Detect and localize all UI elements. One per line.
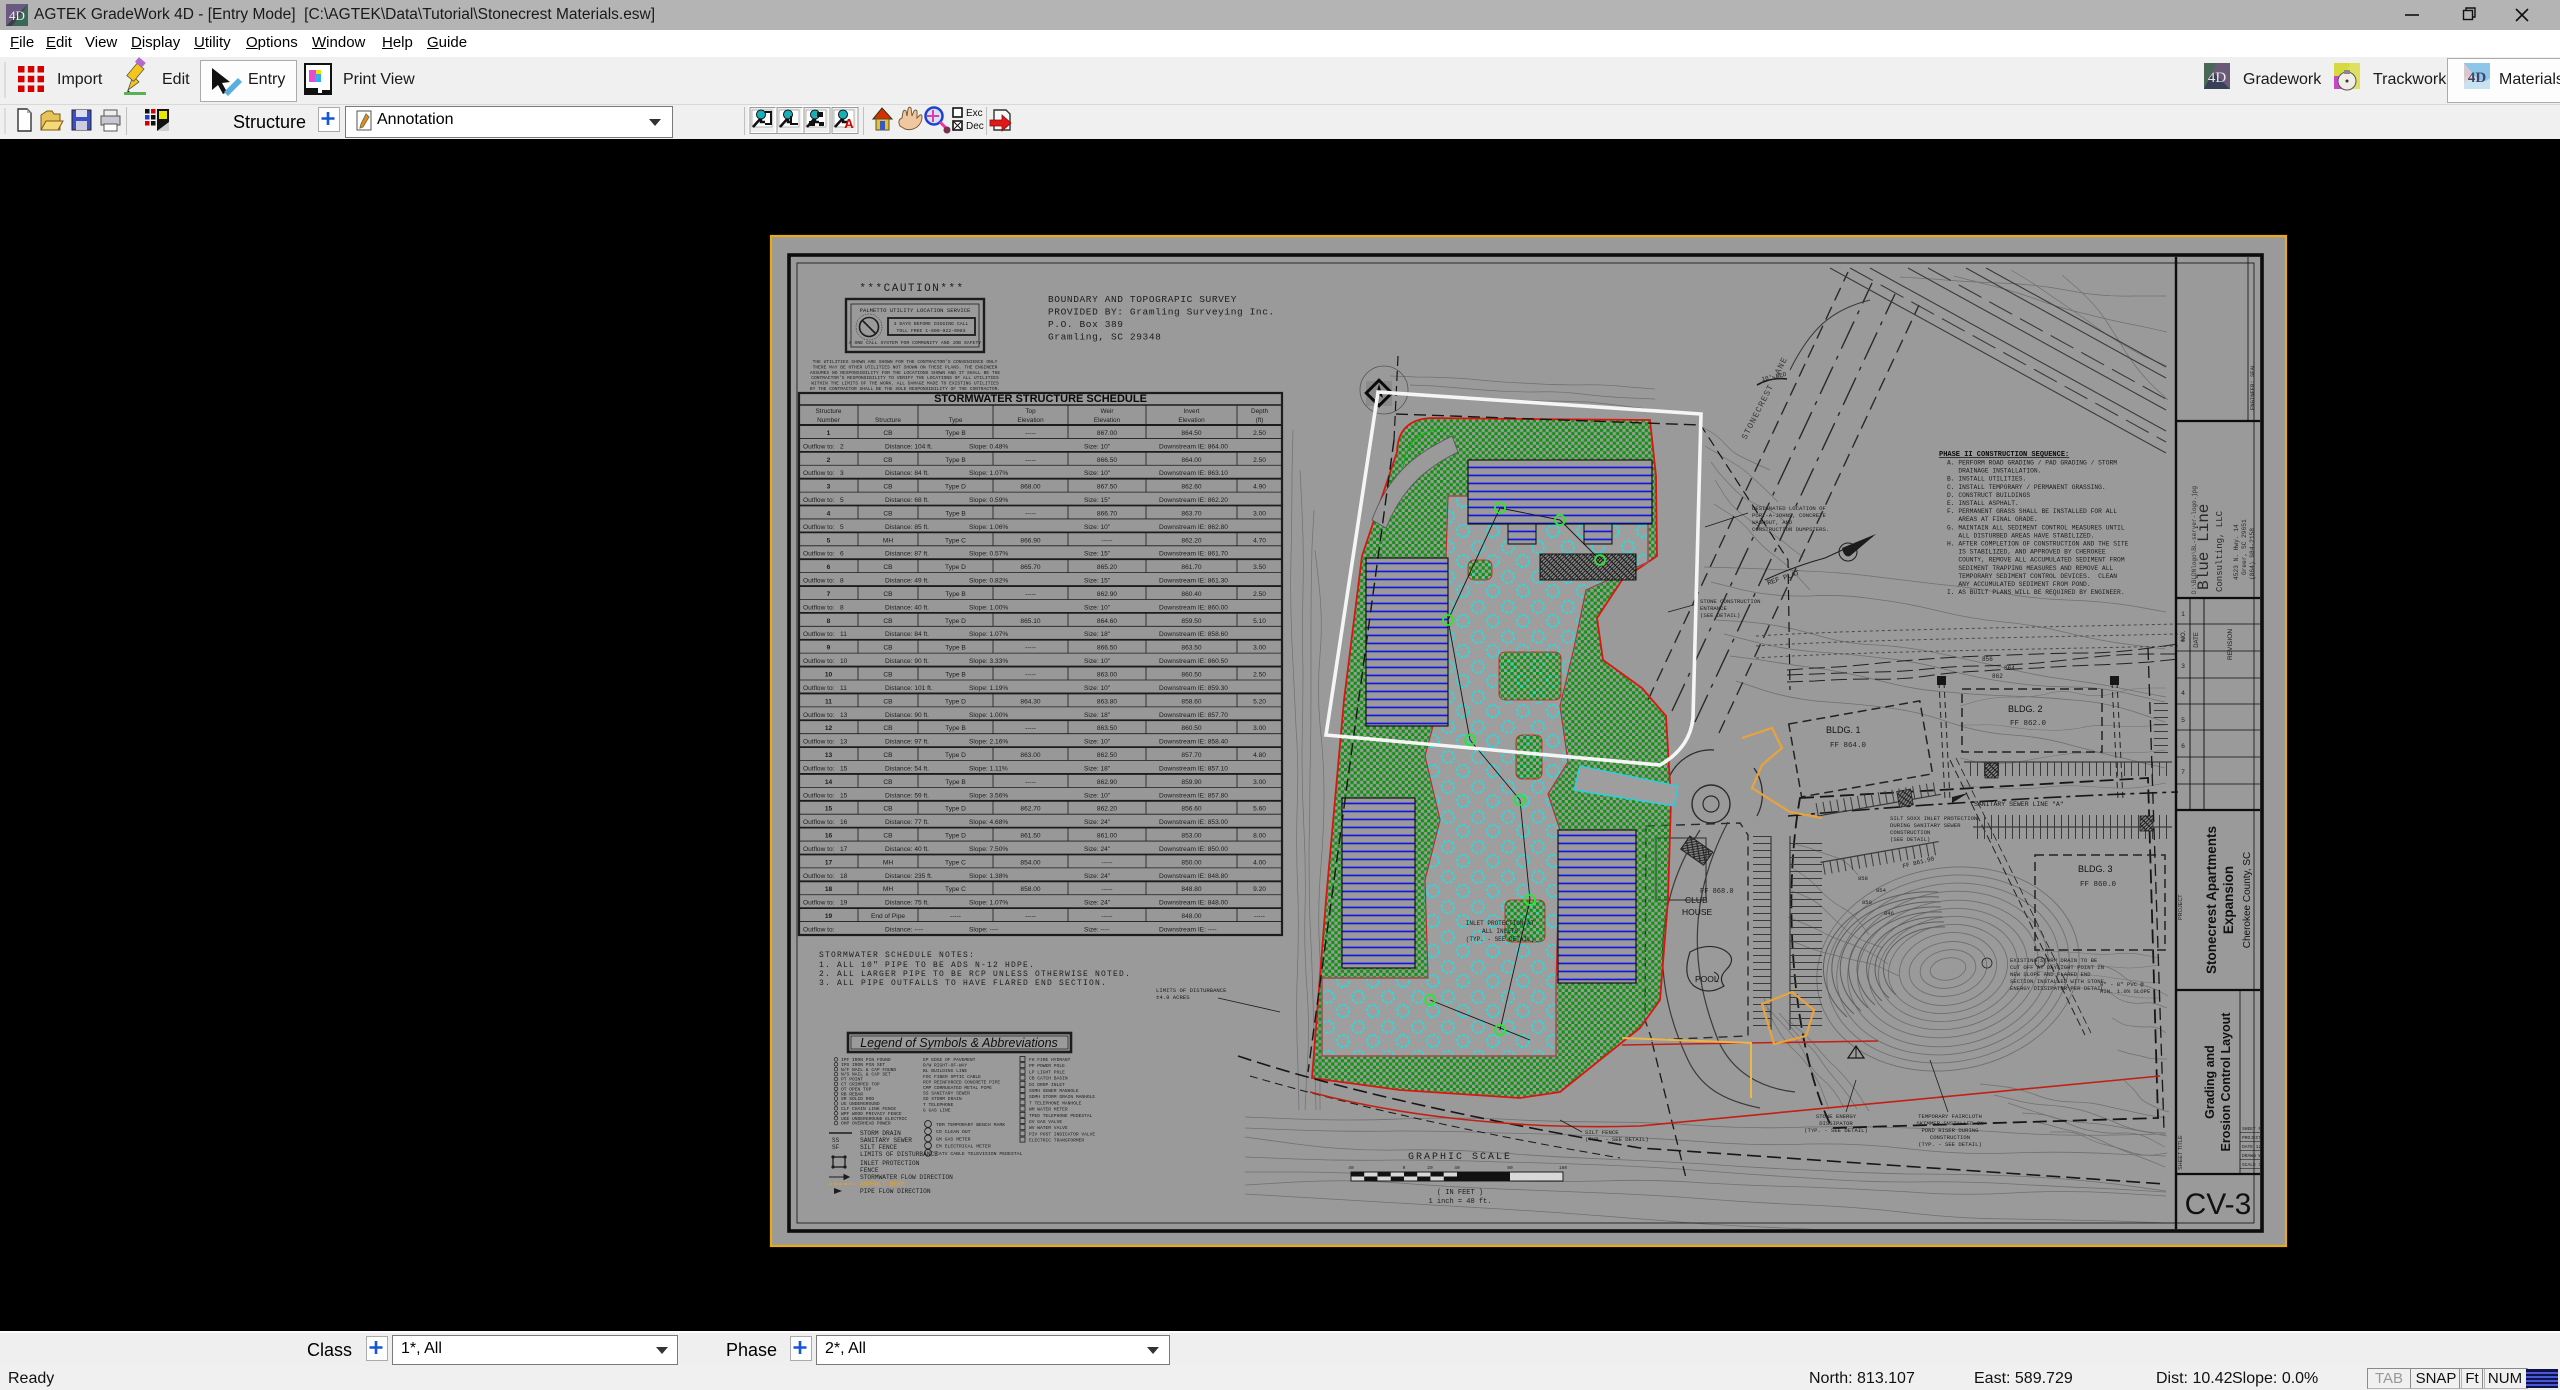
svg-text:Downstream IE: 853.00: Downstream IE: 853.00 [1159,819,1228,826]
svg-text:FF 868.0: FF 868.0 [1700,888,1734,896]
svg-text:Outflow to: 8: Outflow to: 8 [803,604,844,611]
svg-text:LIMITS OF DISTURBANCE: LIMITS OF DISTURBANCE [860,1151,938,1158]
svg-text:4.80: 4.80 [1253,752,1266,759]
svg-text:40: 40 [1348,1165,1354,1171]
svg-text:( IN FEET ): ( IN FEET ) [1437,1189,1483,1197]
svg-text:867.50: 867.50 [1097,484,1118,491]
svg-text:864.00: 864.00 [1181,457,1202,464]
svg-text:Depth: Depth [1251,408,1268,415]
svg-text:Exc: Exc [966,108,983,119]
svg-text:MIN. 1.0% SLOPE: MIN. 1.0% SLOPE [2100,988,2151,995]
svg-text:860.50: 860.50 [1181,672,1202,679]
svg-text:Gramling, SC 29348: Gramling, SC 29348 [1048,332,1161,343]
svg-text:Type B: Type B [945,672,966,679]
svg-text:854.00: 854.00 [1020,859,1041,866]
svg-text:Stonecrest Apartments: Stonecrest Apartments [2204,826,2219,974]
svg-text:CB: CB [883,564,893,571]
svg-text:Elevation: Elevation [1017,417,1044,424]
svg-text:SECTION INSTALLED WITH STONE: SECTION INSTALLED WITH STONE [2010,978,2105,985]
svg-text:Size: 24": Size: 24" [1084,819,1111,826]
svg-text:Type B: Type B [945,510,966,517]
svg-text:WM WATER METER: WM WATER METER [1029,1107,1068,1113]
svg-text:861.50: 861.50 [1020,833,1041,840]
svg-text:-----: ----- [1025,591,1036,598]
svg-text:862.60: 862.60 [1181,484,1202,491]
svg-text:5: 5 [827,537,831,544]
svg-text:SSMH SEWER MANHOLE: SSMH SEWER MANHOLE [1029,1088,1079,1094]
svg-text:Outflow to: 15: Outflow to: 15 [803,792,848,799]
svg-text:10: 10 [825,672,833,679]
svg-text:858: 858 [1858,875,1868,882]
svg-text:Distance: 235 ft.: Distance: 235 ft. [885,873,933,880]
svg-text:863.00: 863.00 [1097,672,1118,679]
svg-text:Outflow to: 17: Outflow to: 17 [803,846,848,853]
svg-text:INLET PROTECTION: INLET PROTECTION [860,1160,920,1167]
svg-text:PROJECT: PROJECT [2178,894,2184,920]
svg-text:-----: ----- [1025,510,1036,517]
svg-text:RCP REINFORCED CONCRETE PIPE: RCP REINFORCED CONCRETE PIPE [923,1079,1000,1085]
svg-text:LP LIGHT POLE: LP LIGHT POLE [1029,1069,1065,1075]
svg-text:Type B: Type B [945,457,966,464]
svg-text:863.80: 863.80 [1097,698,1118,705]
svg-text:5: 5 [2181,717,2185,724]
svg-text:Slope: 0.48%: Slope: 0.48% [969,443,1008,450]
svg-text:862.70: 862.70 [1020,806,1041,813]
svg-text:(SEE DETAIL): (SEE DETAIL) [1890,836,1930,843]
svg-text:Size: 24": Size: 24" [1084,873,1111,880]
svg-text:9.20: 9.20 [1253,886,1266,893]
svg-text:Distance: 85 ft.: Distance: 85 ft. [885,524,929,531]
svg-text:7: 7 [2181,769,2185,776]
svg-text:Outflow to: 16: Outflow to: 16 [803,819,848,826]
svg-text:SF: SF [832,1144,840,1151]
svg-text:OHP OVERHEAD POWER: OHP OVERHEAD POWER [841,1121,891,1127]
svg-text:4.70: 4.70 [1253,537,1266,544]
svg-text:PHASE II CONSTRUCTION SEQUENCE: PHASE II CONSTRUCTION SEQUENCE: [1939,451,2069,459]
svg-text:H. AFTER COMPLETION OF CONSTRU: H. AFTER COMPLETION OF CONSTRUCTION AND … [1947,541,2129,548]
svg-text:ENGINEER: SEAL: ENGINEER: SEAL [2249,364,2256,410]
svg-text:FOC FIBER OPTIC CABLE: FOC FIBER OPTIC CABLE [923,1074,981,1080]
svg-text:Outflow to: 11: Outflow to: 11 [803,631,847,638]
svg-text:Top: Top [1025,408,1036,415]
svg-text:6: 6 [827,564,831,571]
svg-text:Distance: 40 ft.: Distance: 40 ft. [885,846,929,853]
svg-text:866.50: 866.50 [1097,457,1118,464]
svg-text:FENCE: FENCE [860,1167,879,1174]
svg-text:4D: 4D [2468,70,2487,86]
svg-text:Outflow to: 5: Outflow to: 5 [803,524,844,531]
svg-text:PP POWER POLE: PP POWER POLE [1029,1063,1065,1069]
svg-text:2.50: 2.50 [1253,430,1266,437]
svg-text:Type C: Type C [945,886,966,893]
svg-text:(TYP. - SEE DETAIL): (TYP. - SEE DETAIL) [1466,936,1534,943]
svg-text:TBM TEMPORARY BENCH MARK: TBM TEMPORARY BENCH MARK [936,1122,1005,1128]
svg-text:862.90: 862.90 [1097,591,1118,598]
svg-text:Slope: 1.07%: Slope: 1.07% [969,470,1008,477]
svg-text:Downstream IE: 864.00: Downstream IE: 864.00 [1159,443,1228,450]
svg-text:Slope: 0.59%: Slope: 0.59% [969,497,1008,504]
svg-text:***CAUTION***: ***CAUTION*** [859,283,964,295]
svg-text:E. INSTALL ASPHALT.: E. INSTALL ASPHALT. [1947,500,2019,507]
svg-text:866.50: 866.50 [1097,645,1118,652]
svg-text:Downstream IE: 858.40: Downstream IE: 858.40 [1159,739,1228,746]
svg-text:Downstream IE: 848.80: Downstream IE: 848.80 [1159,873,1228,880]
svg-text:6: 6 [2181,743,2185,750]
svg-text:850.00: 850.00 [1181,859,1202,866]
svg-text:Distance: 90 ft.: Distance: 90 ft. [885,712,929,719]
svg-text:Downstream IE: 862.20: Downstream IE: 862.20 [1159,497,1228,504]
svg-text:Distance: 77 ft.: Distance: 77 ft. [885,819,929,826]
svg-text:Outflow to: 15: Outflow to: 15 [803,765,848,772]
svg-text:Type C: Type C [945,537,966,544]
svg-text:CB: CB [883,618,893,625]
svg-text:861.70: 861.70 [1181,564,1202,571]
svg-text:DRAINAGE INSTALLATION.: DRAINAGE INSTALLATION. [1947,468,2041,475]
svg-text:CONSTRUCTION DUMPSTERS.: CONSTRUCTION DUMPSTERS. [1752,526,1829,533]
svg-text:Slope: 3.33%: Slope: 3.33% [969,658,1008,665]
svg-text:Weir: Weir [1100,408,1114,415]
svg-text:PORT-A-JOHNS, CONCRETE: PORT-A-JOHNS, CONCRETE [1752,512,1826,519]
svg-text:3.50: 3.50 [1253,564,1266,571]
svg-text:Distance: 90 ft.: Distance: 90 ft. [885,658,929,665]
svg-text:Distance: 97 ft.: Distance: 97 ft. [885,739,929,746]
svg-text:8: 8 [827,618,831,625]
svg-text:865.70: 865.70 [1020,564,1041,571]
svg-text:848.00: 848.00 [1181,913,1202,920]
svg-text:9: 9 [827,645,831,652]
svg-text:A: A [844,116,854,131]
svg-text:P.O. Box 389: P.O. Box 389 [1048,319,1124,330]
svg-text:CLUB: CLUB [1685,895,1708,905]
svg-text:14: 14 [825,779,833,786]
svg-text:1: 1 [827,430,831,437]
svg-text:12: 12 [825,725,833,732]
svg-text:G GAS LINE: G GAS LINE [923,1107,951,1113]
svg-text:SILT SOXX INLET PROTECTION: SILT SOXX INLET PROTECTION [1890,815,1977,822]
svg-text:FF 862.0: FF 862.0 [2010,720,2047,728]
svg-text:857.70: 857.70 [1181,752,1202,759]
svg-text:D. CONSTRUCT BUILDINGS: D. CONSTRUCT BUILDINGS [1947,492,2030,499]
svg-text:Size: 24": Size: 24" [1084,900,1111,907]
svg-text:Type B: Type B [945,725,966,732]
svg-text:18: 18 [825,886,833,893]
svg-text:CB: CB [883,430,893,437]
svg-text:860.40: 860.40 [1181,591,1202,598]
svg-text:-----: ----- [1025,779,1036,786]
svg-text:Elevation: Elevation [1178,417,1205,424]
svg-text:80: 80 [1507,1165,1513,1171]
svg-text:Slope: 1.00%: Slope: 1.00% [969,712,1008,719]
svg-text:COUNTY, REMOVE ALL ACCUMULATED: COUNTY, REMOVE ALL ACCUMULATED SEDIMENT … [1947,557,2125,564]
svg-text:Downstream IE: 848.00: Downstream IE: 848.00 [1159,900,1228,907]
svg-text:Slope: 4.68%: Slope: 4.68% [969,819,1008,826]
svg-text:PIPE FLOW DIRECTION: PIPE FLOW DIRECTION [860,1188,931,1195]
svg-text:Downstream IE: 857.70: Downstream IE: 857.70 [1159,712,1228,719]
svg-text:THE UTILITIES SHOWN ARE SHOWN: THE UTILITIES SHOWN ARE SHOWN FOR THE CO… [813,359,998,365]
svg-text:Slope: ----: Slope: ---- [969,927,998,934]
svg-text:CB: CB [883,779,893,786]
svg-text:858.60: 858.60 [1181,698,1202,705]
svg-text:TOLL FREE 1-800-922-0983: TOLL FREE 1-800-922-0983 [896,328,965,334]
svg-text:Size: 18": Size: 18" [1084,712,1111,719]
svg-text:CONSTRUCTION: CONSTRUCTION [1930,1134,1970,1141]
svg-text:ENERGY DISSIPATOR PER DETAIL: ENERGY DISSIPATOR PER DETAIL [2010,985,2104,992]
svg-text:SS SANITARY SEWER: SS SANITARY SEWER [923,1091,970,1097]
svg-text:Consulting, LLC: Consulting, LLC [2215,510,2225,592]
svg-text:STONE CONSTRUCTION: STONE CONSTRUCTION [1700,598,1760,605]
svg-text:Size: ----: Size: ---- [1084,927,1109,934]
svg-text:Type B: Type B [945,645,966,652]
svg-text:-----: ----- [1025,430,1036,437]
svg-text:CB: CB [883,510,893,517]
svg-text:Outflow to: 2: Outflow to: 2 [803,443,844,450]
svg-text:Size: 10": Size: 10" [1084,792,1111,799]
svg-text:-----: ----- [950,913,961,920]
svg-text:Slope: 1.07%: Slope: 1.07% [969,631,1008,638]
svg-text:NO.: NO. [2181,630,2187,641]
svg-text:STONE ENERGY: STONE ENERGY [1816,1113,1857,1120]
svg-text:Type D: Type D [945,698,966,705]
svg-text:DATE: DATE [2194,632,2200,648]
svg-text:864.50: 864.50 [1181,430,1202,437]
svg-text:C. INSTALL TEMPORARY / PERMANE: C. INSTALL TEMPORARY / PERMANENT GRASSIN… [1947,484,2106,491]
svg-text:7: 7 [827,591,831,598]
svg-text:Slope: 2.16%: Slope: 2.16% [969,739,1008,746]
svg-text:0: 0 [1403,1165,1406,1171]
svg-text:Size: 10": Size: 10" [1084,604,1111,611]
svg-text:B. INSTALL UTILITIES.: B. INSTALL UTILITIES. [1947,476,2026,483]
svg-text:Downstream IE: 850.00: Downstream IE: 850.00 [1159,846,1228,853]
svg-text:863.50: 863.50 [1181,645,1202,652]
svg-text:Downstream IE: 860.50: Downstream IE: 860.50 [1159,658,1228,665]
svg-text:Downstream IE: 861.70: Downstream IE: 861.70 [1159,551,1228,558]
svg-text:G. MAINTAIN ALL SEDIMENT CONTR: G. MAINTAIN ALL SEDIMENT CONTROL MEASURE… [1947,524,2125,531]
svg-text:CB: CB [883,591,893,598]
svg-text:STORM DRAIN: STORM DRAIN [860,1130,901,1137]
svg-text:Distance: 54 ft.: Distance: 54 ft. [885,765,929,772]
svg-text:DISSIPATOR: DISSIPATOR [1819,1120,1853,1127]
svg-text:Cherokee County, SC: Cherokee County, SC [2242,852,2253,949]
svg-text:5.20: 5.20 [1253,698,1266,705]
svg-text:853.00: 853.00 [1181,833,1202,840]
svg-text:3.00: 3.00 [1253,779,1266,786]
svg-text:Size: 18": Size: 18" [1084,765,1111,772]
svg-text:Size: 15": Size: 15" [1084,551,1111,558]
svg-text:4.90: 4.90 [1253,484,1266,491]
svg-text:Slope: 0.82%: Slope: 0.82% [969,578,1008,585]
svg-text:R/W RIGHT-OF-WAY: R/W RIGHT-OF-WAY [923,1063,967,1069]
svg-text:PIV POST INDICATOR VALVE: PIV POST INDICATOR VALVE [1029,1131,1095,1137]
svg-text:Downstream IE: 860.00: Downstream IE: 860.00 [1159,604,1228,611]
svg-text:846: 846 [1884,910,1894,917]
svg-text:STORMWATER SCHEDULE NOTES:: STORMWATER SCHEDULE NOTES: [819,951,975,960]
svg-text:WV WATER VALVE: WV WATER VALVE [1029,1125,1068,1131]
svg-text:IS STABILIZED, AND APPROVED BY: IS STABILIZED, AND APPROVED BY CHEROKEE [1947,549,2106,556]
svg-text:CO CLEAN OUT: CO CLEAN OUT [936,1129,971,1135]
svg-text:Size: 24": Size: 24" [1084,846,1111,853]
svg-text:Outflow to: 8: Outflow to: 8 [803,578,844,585]
svg-text:PROVIDED BY: Gramling Surveyin: PROVIDED BY: Gramling Surveying Inc. [1048,307,1275,318]
svg-text:40: 40 [1454,1165,1460,1171]
svg-text:CB: CB [883,725,893,732]
svg-text:8.00: 8.00 [1253,833,1266,840]
svg-text:Distance: 59 ft.: Distance: 59 ft. [885,792,929,799]
svg-text:ASSUMES NO RESPONSIBILITY FOR: ASSUMES NO RESPONSIBILITY FOR THE LOCATI… [810,370,1000,376]
svg-text:866.90: 866.90 [1020,537,1041,544]
svg-text:Slope: 1.19%: Slope: 1.19% [969,685,1008,692]
svg-text:Distance: 101 ft.: Distance: 101 ft. [885,685,933,692]
svg-text:862.20: 862.20 [1181,537,1202,544]
svg-text:866.70: 866.70 [1097,510,1118,517]
svg-text:863.50: 863.50 [1097,725,1118,732]
svg-text:BLDG. 2: BLDG. 2 [2008,704,2043,714]
svg-text:LIMITS OF DISTURBANCE: LIMITS OF DISTURBANCE [1156,987,1227,994]
svg-text:2: 2 [827,457,831,464]
svg-text:16: 16 [825,833,833,840]
svg-text:3: 3 [2181,663,2185,670]
svg-text:Distance: ----: Distance: ---- [885,927,923,934]
svg-text:3.00: 3.00 [1253,725,1266,732]
svg-text:3.00: 3.00 [1253,510,1266,517]
svg-text:4: 4 [827,510,831,517]
svg-text:Size: 10": Size: 10" [1084,658,1111,665]
svg-text:Grading and: Grading and [2203,1045,2217,1119]
svg-text:Distance: 68 ft.: Distance: 68 ft. [885,497,929,504]
svg-text:862: 862 [1992,673,2003,680]
svg-text:CB CATCH BASIN: CB CATCH BASIN [1029,1076,1068,1082]
svg-text:1: 1 [2181,611,2185,618]
svg-text:(SEE DETAIL): (SEE DETAIL) [1700,612,1740,619]
svg-text:Outflow to: 19: Outflow to: 19 [803,900,848,907]
svg-text:EXISTING STORM DRAIN TO BE: EXISTING STORM DRAIN TO BE [2010,957,2098,964]
svg-text:Downstream IE: 859.30: Downstream IE: 859.30 [1159,685,1228,692]
svg-text:ANY ACCUMULATED SEDIMENT FROM: ANY ACCUMULATED SEDIMENT FROM POND. [1947,581,2091,588]
svg-text:-----: ----- [1102,913,1113,920]
svg-text:8" - 8" PVC @: 8" - 8" PVC @ [2100,981,2144,988]
svg-text:End of Pipe: End of Pipe [871,913,905,920]
svg-text:Type D: Type D [945,564,966,571]
svg-text:EP EDGE OF PAVEMENT: EP EDGE OF PAVEMENT [923,1057,976,1063]
svg-text:-----: ----- [1025,457,1036,464]
svg-text:Type B: Type B [945,430,966,437]
svg-text:CB: CB [883,457,893,464]
svg-text:Type C: Type C [945,859,966,866]
svg-text:1. ALL 10" PIPE TO BE ADS N-: 1. ALL 10" PIPE TO BE ADS N-12 HDPE. [819,961,1035,970]
svg-text:862.50: 862.50 [1097,752,1118,759]
svg-text:SILT FENCE: SILT FENCE [1585,1129,1619,1136]
svg-text:FH FIRE HYDRANT: FH FIRE HYDRANT [1029,1057,1071,1063]
svg-text:SANITARY SEWER: SANITARY SEWER [860,1137,912,1144]
svg-text:Outflow to: 11: Outflow to: 11 [803,685,847,692]
svg-text:Type D: Type D [945,618,966,625]
svg-text:Greer, SC 29651: Greer, SC 29651 [2241,519,2248,575]
svg-text:Number: Number [817,417,841,424]
svg-text:850: 850 [1862,899,1872,906]
svg-text:SEDIMENT TRAPPING MEASURES AND: SEDIMENT TRAPPING MEASURES AND REMOVE AL… [1947,565,2113,572]
svg-text:Distance: 87 ft.: Distance: 87 ft. [885,551,929,558]
svg-text:Outflow to: 10: Outflow to: 10 [803,658,848,665]
svg-text:859.50: 859.50 [1181,618,1202,625]
svg-text:854: 854 [1876,887,1887,894]
svg-text:MH: MH [883,537,893,544]
svg-text:(TYP. - SEE DETAIL): (TYP. - SEE DETAIL) [1585,1136,1649,1143]
svg-text:856.60: 856.60 [1181,806,1202,813]
svg-text:4523 N. Hwy. 14: 4523 N. Hwy. 14 [2233,524,2240,580]
svg-text:Slope: 7.50%: Slope: 7.50% [969,846,1008,853]
svg-text:Downstream IE: 861.30: Downstream IE: 861.30 [1159,578,1228,585]
svg-text:Distance: 40 ft.: Distance: 40 ft. [885,604,929,611]
svg-text:T TELEPHONE MANHOLE: T TELEPHONE MANHOLE [1029,1100,1082,1106]
svg-text:SILT FENCE: SILT FENCE [860,1144,897,1151]
svg-text:CB: CB [883,752,893,759]
svg-text:SD STORM DRAIN: SD STORM DRAIN [923,1096,962,1102]
svg-text:Type D: Type D [945,833,966,840]
svg-text:848.80: 848.80 [1181,886,1202,893]
svg-text:862.20: 862.20 [1097,806,1118,813]
svg-text:864: 864 [2004,665,2015,672]
svg-text:STORMWATER FLOW DIRECTION: STORMWATER FLOW DIRECTION [860,1174,953,1181]
svg-text:Outflow to:: Outflow to: [803,927,840,934]
svg-text:SHEET TITLE: SHEET TITLE [2178,1135,2184,1170]
svg-text:862.90: 862.90 [1097,779,1118,786]
svg-text:HOUSE: HOUSE [1682,907,1713,917]
svg-text:MH: MH [883,859,893,866]
svg-text:DURING SANITARY SEWER: DURING SANITARY SEWER [1890,822,1961,829]
svg-text:CV-3: CV-3 [2185,1188,2252,1221]
svg-text:15: 15 [825,806,833,813]
svg-text:865.20: 865.20 [1097,564,1118,571]
svg-text:PALMETTO UTILITY LOCATION SERV: PALMETTO UTILITY LOCATION SERVICE [860,307,971,314]
svg-text:DI DROP INLET: DI DROP INLET [1029,1082,1065,1088]
svg-text:SANITARY SEWER LINE "A": SANITARY SEWER LINE "A" [1974,801,2064,808]
svg-text:Downstream IE: ----: Downstream IE: ---- [1159,927,1217,934]
svg-text:Slope: 1.00%: Slope: 1.00% [969,604,1008,611]
svg-text:-----: ----- [1025,913,1036,920]
svg-text:Distance: 84 ft.: Distance: 84 ft. [885,631,929,638]
svg-text:TEMPORARY SEDIMENT CONTROL DEV: TEMPORARY SEDIMENT CONTROL DEVICES. CLEA… [1947,573,2117,580]
svg-text:CONTRACTOR'S RESPONSIBILITY TO: CONTRACTOR'S RESPONSIBILITY TO VERIFY TH… [811,375,999,381]
svg-text:Type D: Type D [945,752,966,759]
svg-text:160: 160 [1559,1165,1567,1171]
svg-text:Legend of Symbols & Abbreviati: Legend of Symbols & Abbreviations [860,1036,1058,1050]
svg-text:DESIGNATED LOCATION OF: DESIGNATED LOCATION OF [1752,505,1826,512]
svg-text:±4.9 ACRES: ±4.9 ACRES [1156,994,1190,1001]
svg-text:Outflow to: 13: Outflow to: 13 [803,712,848,719]
svg-text:Downstream IE: 862.80: Downstream IE: 862.80 [1159,524,1228,531]
svg-text:FF 860.0: FF 860.0 [2080,881,2117,889]
svg-text:Distance: 49 ft.: Distance: 49 ft. [885,578,929,585]
svg-text:868.00: 868.00 [1020,484,1041,491]
svg-text:(864) 984-2158: (864) 984-2158 [2249,528,2256,580]
svg-text:863.00: 863.00 [1020,752,1041,759]
svg-text:A. PERFORM ROAD GRADING / PAD: A. PERFORM ROAD GRADING / PAD GRADING / … [1947,460,2117,467]
svg-text:Structure: Structure [816,408,842,415]
svg-text:-----: ----- [1025,672,1036,679]
svg-text:Slope: 1.07%: Slope: 1.07% [969,900,1008,907]
svg-text:POOL: POOL [1695,974,1719,984]
svg-text:FF 864.0: FF 864.0 [1830,742,1867,750]
svg-text:5.10: 5.10 [1253,618,1266,625]
svg-text:Size: 10": Size: 10" [1084,685,1111,692]
svg-text:864.30: 864.30 [1020,698,1041,705]
svg-text:CB: CB [883,833,893,840]
svg-text:Dec: Dec [966,121,984,132]
svg-text:Type B: Type B [945,591,966,598]
svg-text:BY THE CONTRACTOR SHALL BE THE: BY THE CONTRACTOR SHALL BE THE SOLE RESP… [810,386,1000,392]
svg-text:GM GAS METER: GM GAS METER [936,1136,971,1142]
svg-text:860.50: 860.50 [1181,725,1202,732]
svg-text:BL BUILDING LINE: BL BUILDING LINE [923,1068,967,1074]
